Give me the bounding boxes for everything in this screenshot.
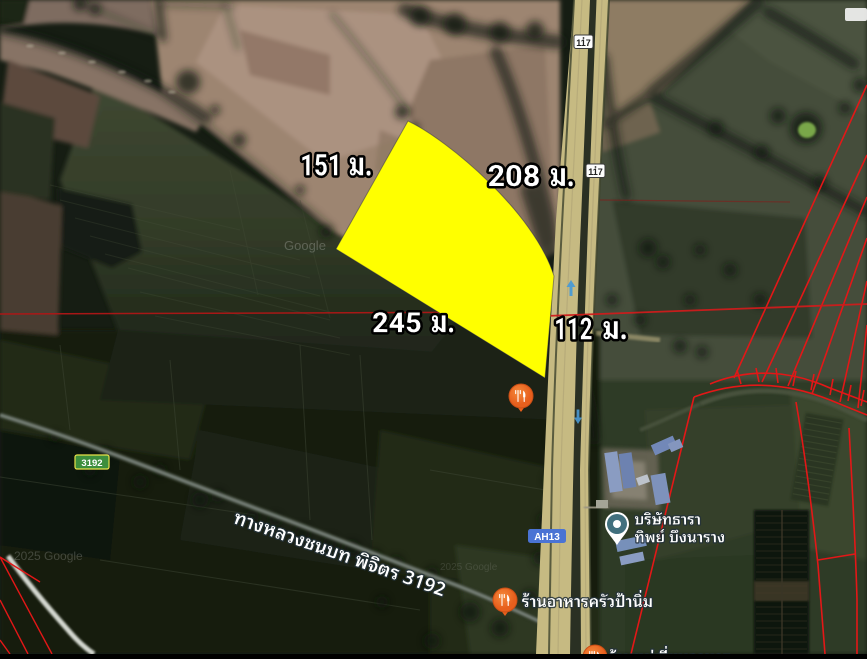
svg-text:2025 Google: 2025 Google (440, 562, 498, 573)
svg-text:2025 Google: 2025 Google (14, 549, 83, 563)
svg-text:117: 117 (576, 38, 591, 48)
svg-text:117: 117 (588, 167, 603, 177)
svg-text:AH13: AH13 (534, 532, 560, 543)
svg-text:Google: Google (284, 238, 326, 253)
svg-text:3192: 3192 (81, 458, 102, 469)
